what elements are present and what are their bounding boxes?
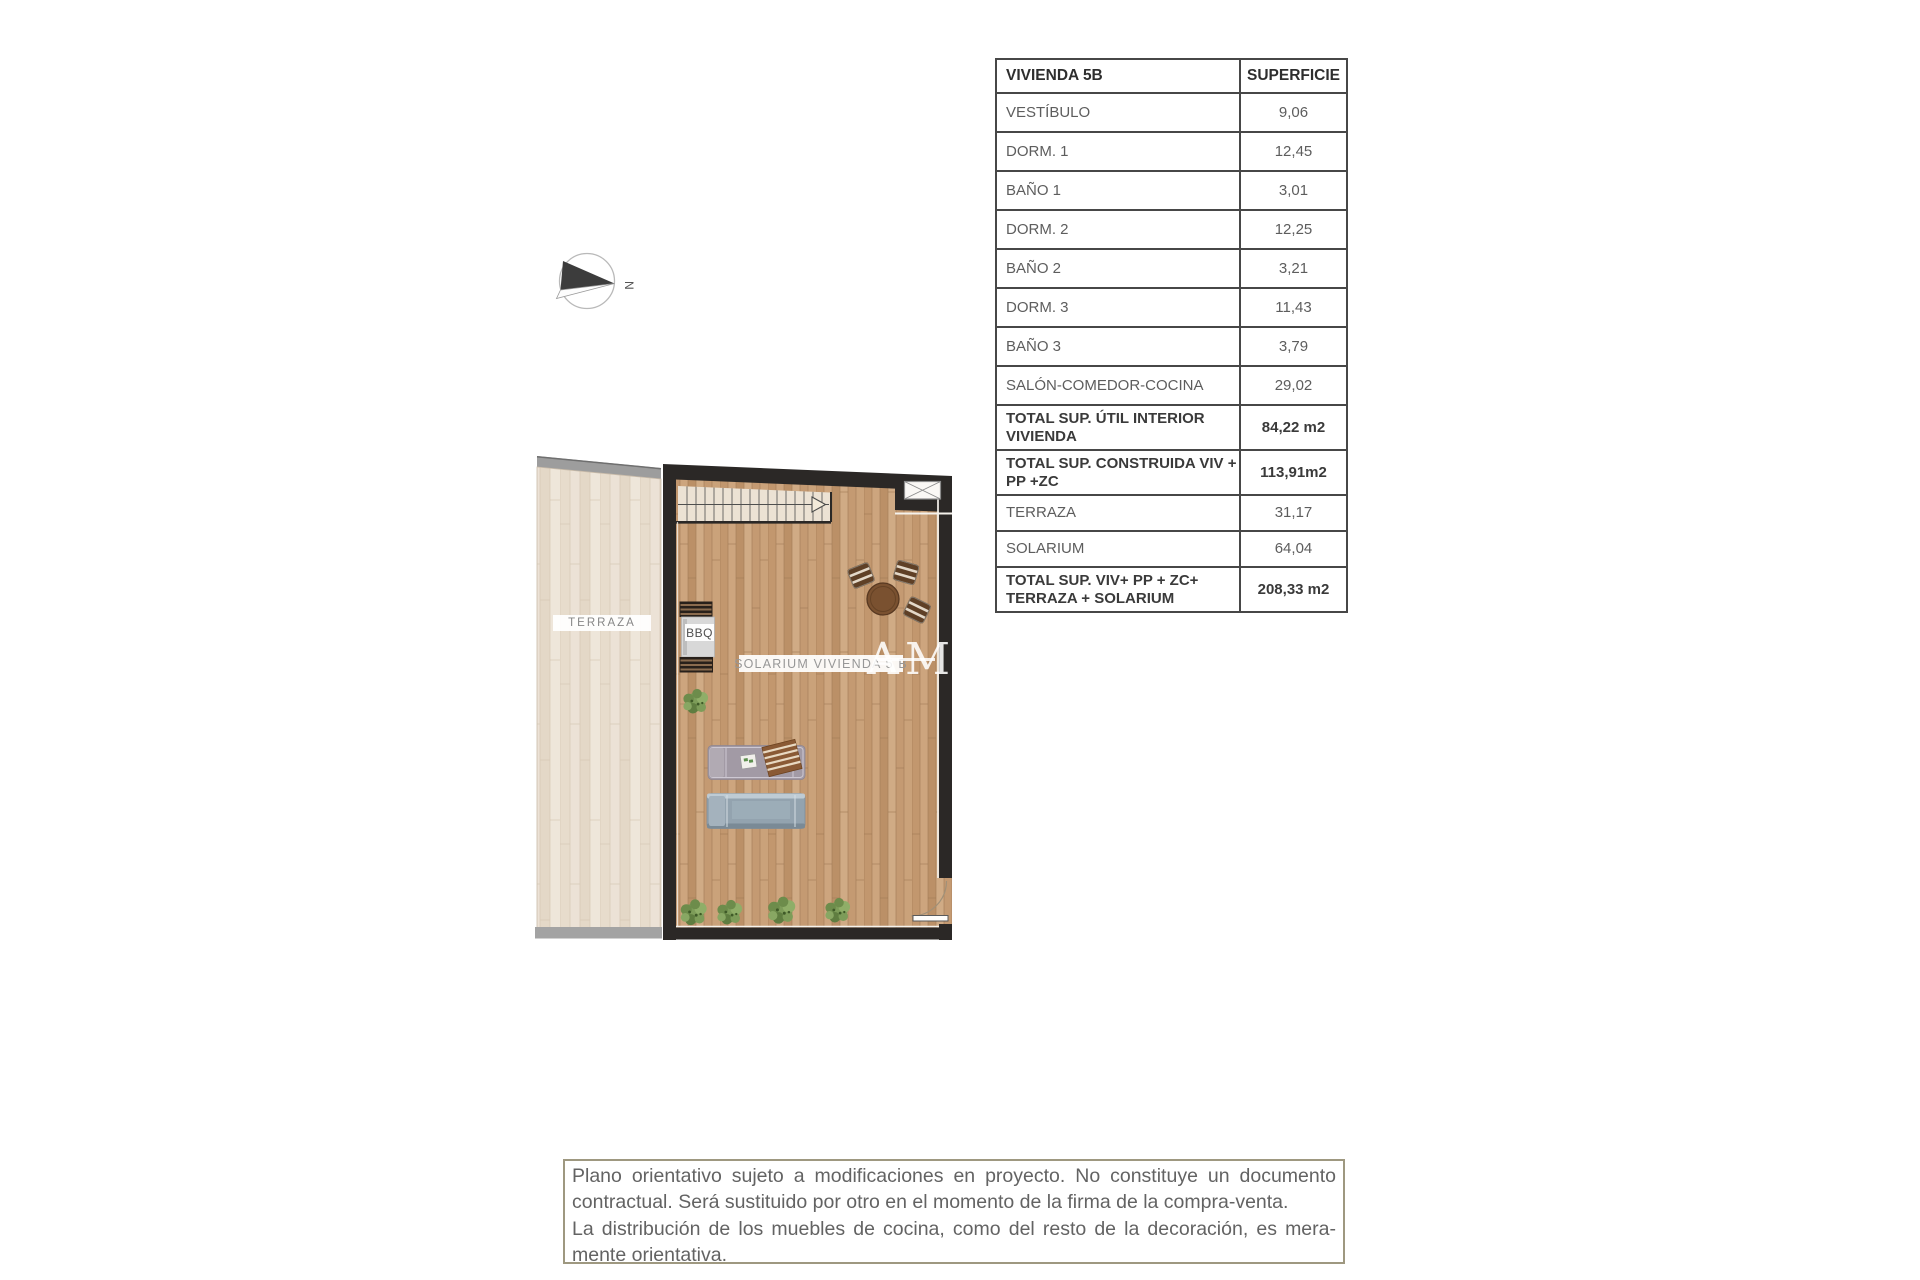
room-label: BAÑO 3 bbox=[996, 327, 1240, 366]
table-row: BAÑO 2 3,21 bbox=[996, 249, 1347, 288]
bbq-label: BBQ bbox=[685, 624, 714, 641]
sun-lounger-top bbox=[708, 739, 805, 779]
room-area: 31,17 bbox=[1240, 495, 1347, 531]
superficie-header: SUPERFICIE bbox=[1240, 59, 1347, 93]
terrace-area bbox=[535, 456, 662, 939]
surface-table: VIVIENDA 5B SUPERFICIE VESTÍBULO 9,06 DO… bbox=[995, 58, 1348, 613]
sun-lounger-bottom bbox=[707, 794, 805, 829]
total-area: 84,22 m2 bbox=[1240, 405, 1347, 450]
total-area: 208,33 m2 bbox=[1240, 567, 1347, 612]
table-row: SOLARIUM 64,04 bbox=[996, 531, 1347, 567]
room-area: 3,21 bbox=[1240, 249, 1347, 288]
room-area: 12,45 bbox=[1240, 132, 1347, 171]
room-area: 64,04 bbox=[1240, 531, 1347, 567]
table-row: DORM. 3 11,43 bbox=[996, 288, 1347, 327]
table-header-row: VIVIENDA 5B SUPERFICIE bbox=[996, 59, 1347, 93]
room-area: 11,43 bbox=[1240, 288, 1347, 327]
table-row: SALÓN-COMEDOR-COCINA 29,02 bbox=[996, 366, 1347, 405]
disclaimer-line: La distribución de los muebles de cocina… bbox=[572, 1216, 1336, 1242]
disclaimer-box: Plano orientativo sujeto a modificacione… bbox=[563, 1159, 1345, 1264]
room-area: 29,02 bbox=[1240, 366, 1347, 405]
room-label: DORM. 1 bbox=[996, 132, 1240, 171]
room-label: BAÑO 1 bbox=[996, 171, 1240, 210]
round-table bbox=[867, 583, 899, 615]
table-total-row: TOTAL SUP. VIV+ PP + ZC+ TERRAZA + SOLAR… bbox=[996, 567, 1347, 612]
total-label: TOTAL SUP. VIV+ PP + ZC+ TERRAZA + SOLAR… bbox=[996, 567, 1240, 612]
watermark-letter-m: M bbox=[905, 637, 950, 683]
floor-plan-drawing: N bbox=[0, 0, 1920, 1280]
table-row: TERRAZA 31,17 bbox=[996, 495, 1347, 531]
room-area: 3,01 bbox=[1240, 171, 1347, 210]
table-row: BAÑO 3 3,79 bbox=[996, 327, 1347, 366]
room-label: DORM. 3 bbox=[996, 288, 1240, 327]
table-total-row: TOTAL SUP. ÚTIL INTERIOR VIVIENDA 84,22 … bbox=[996, 405, 1347, 450]
table-title: VIVIENDA 5B bbox=[996, 59, 1240, 93]
table-row: DORM. 2 12,25 bbox=[996, 210, 1347, 249]
north-arrow-icon: N bbox=[557, 254, 637, 309]
disclaimer-line: contractual. Será sustituido por otro en… bbox=[572, 1189, 1336, 1215]
skylight-icon bbox=[905, 482, 941, 500]
table-total-row: TOTAL SUP. CONSTRUIDA VIV + PP +ZC 113,9… bbox=[996, 450, 1347, 495]
room-label: DORM. 2 bbox=[996, 210, 1240, 249]
book bbox=[740, 754, 757, 769]
table-row: BAÑO 1 3,01 bbox=[996, 171, 1347, 210]
room-label: TERRAZA bbox=[996, 495, 1240, 531]
total-label: TOTAL SUP. CONSTRUIDA VIV + PP +ZC bbox=[996, 450, 1240, 495]
disclaimer-line: mente orientativa. bbox=[572, 1242, 1336, 1268]
solarium-area bbox=[664, 466, 952, 939]
plan-sheet: N bbox=[0, 0, 1920, 1280]
table-row: VESTÍBULO 9,06 bbox=[996, 93, 1347, 132]
total-area: 113,91m2 bbox=[1240, 450, 1347, 495]
disclaimer-line: Plano orientativo sujeto a modificacione… bbox=[572, 1163, 1336, 1189]
compass-n-label: N bbox=[622, 281, 636, 290]
terraza-label: TERRAZA bbox=[553, 615, 651, 631]
room-label: VESTÍBULO bbox=[996, 93, 1240, 132]
room-label: SOLARIUM bbox=[996, 531, 1240, 567]
table-row: DORM. 1 12,45 bbox=[996, 132, 1347, 171]
room-area: 9,06 bbox=[1240, 93, 1347, 132]
room-area: 3,79 bbox=[1240, 327, 1347, 366]
room-label: BAÑO 2 bbox=[996, 249, 1240, 288]
room-area: 12,25 bbox=[1240, 210, 1347, 249]
room-label: SALÓN-COMEDOR-COCINA bbox=[996, 366, 1240, 405]
brand-watermark: A M bbox=[867, 637, 945, 685]
total-label: TOTAL SUP. ÚTIL INTERIOR VIVIENDA bbox=[996, 405, 1240, 450]
